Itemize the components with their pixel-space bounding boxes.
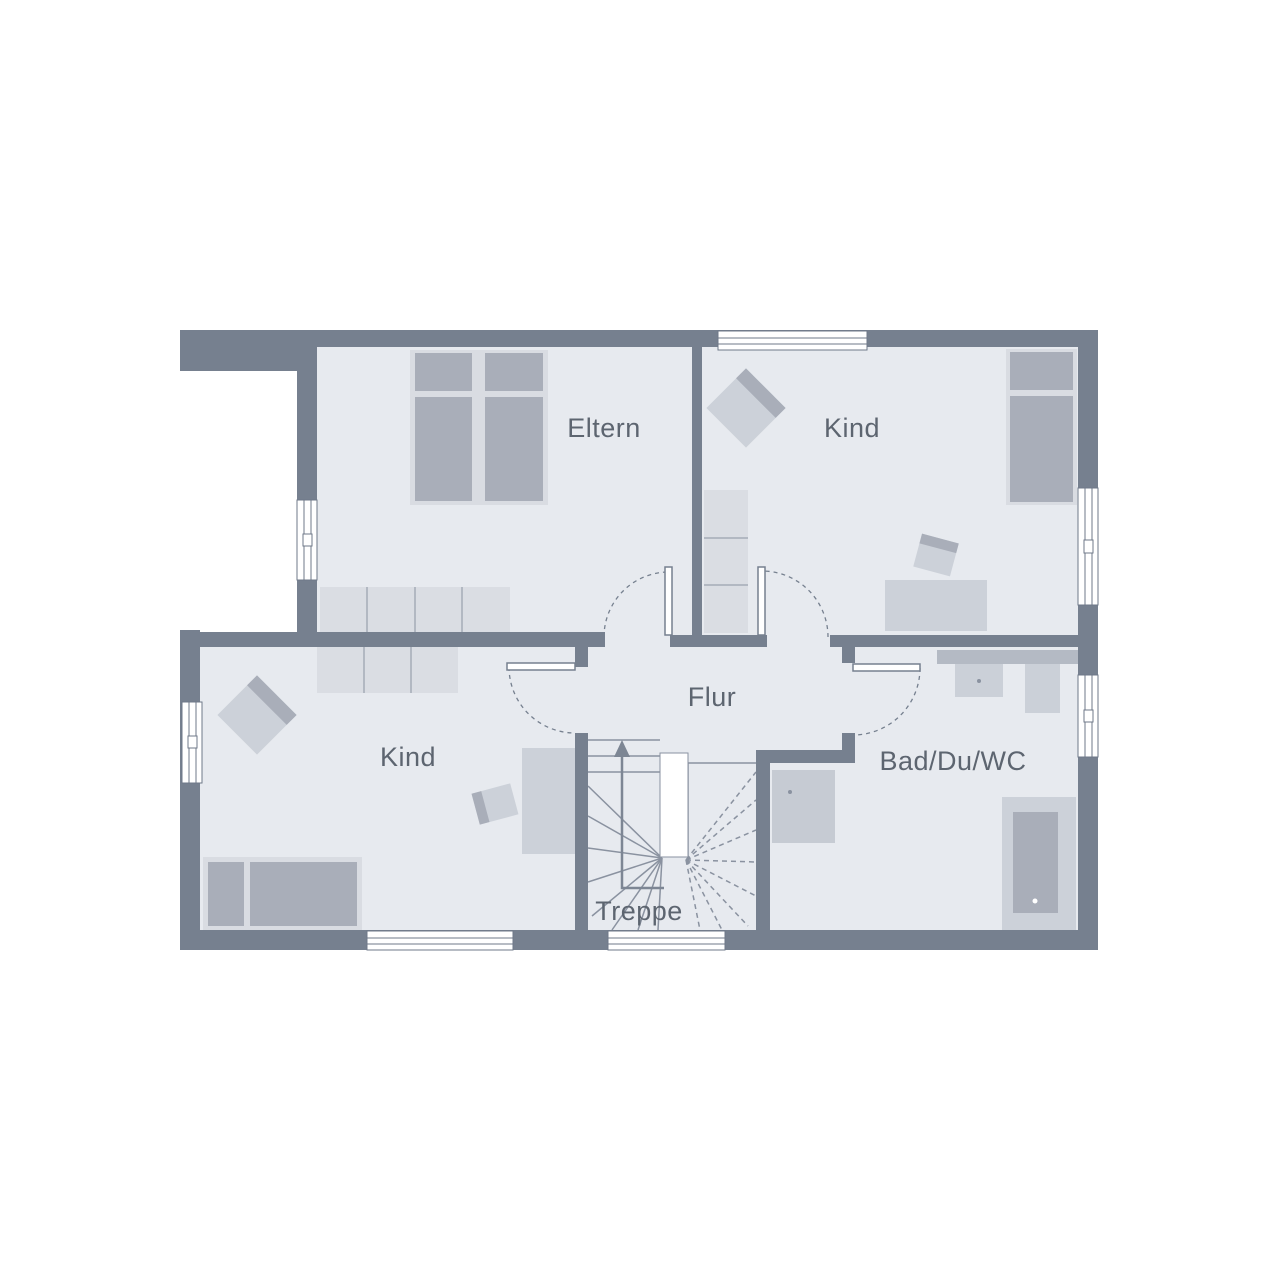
room-label-eltern: Eltern [567, 413, 641, 443]
wardrobe-eltern [320, 587, 510, 633]
room-label-kind-bottom: Kind [380, 742, 436, 772]
wardrobe-kind-bottom [317, 645, 458, 693]
shower [772, 770, 835, 843]
window-treppe-south [608, 931, 725, 950]
window-kind-bottom-west [182, 702, 202, 783]
bed-double-eltern [410, 350, 548, 505]
room-label-treppe: Treppe [595, 896, 683, 926]
bed-kind-top [1006, 349, 1077, 505]
room-label-flur: Flur [688, 682, 737, 712]
room-label-kind-top: Kind [824, 413, 880, 443]
floorplan-page: Eltern Kind Kind Flur Bad/Du/WC Treppe [0, 0, 1280, 1280]
wc [1025, 664, 1060, 713]
wardrobe-kind-top [704, 490, 748, 633]
window-kind-top-east [1078, 488, 1098, 605]
floorplan-canvas: Eltern Kind Kind Flur Bad/Du/WC Treppe [0, 0, 1280, 1280]
bed-kind-bottom [203, 857, 362, 931]
vanity-counter [937, 650, 1078, 664]
desk-kind-top [885, 580, 987, 631]
window-kind-top-north [718, 331, 867, 350]
window-bad-east [1078, 675, 1098, 757]
window-eltern-west [297, 500, 317, 580]
desk-kind-bottom [522, 748, 575, 854]
room-label-bad: Bad/Du/WC [879, 746, 1026, 776]
bathtub [1002, 797, 1076, 930]
window-kind-bottom-south [367, 931, 513, 950]
washbasin [955, 664, 1003, 697]
